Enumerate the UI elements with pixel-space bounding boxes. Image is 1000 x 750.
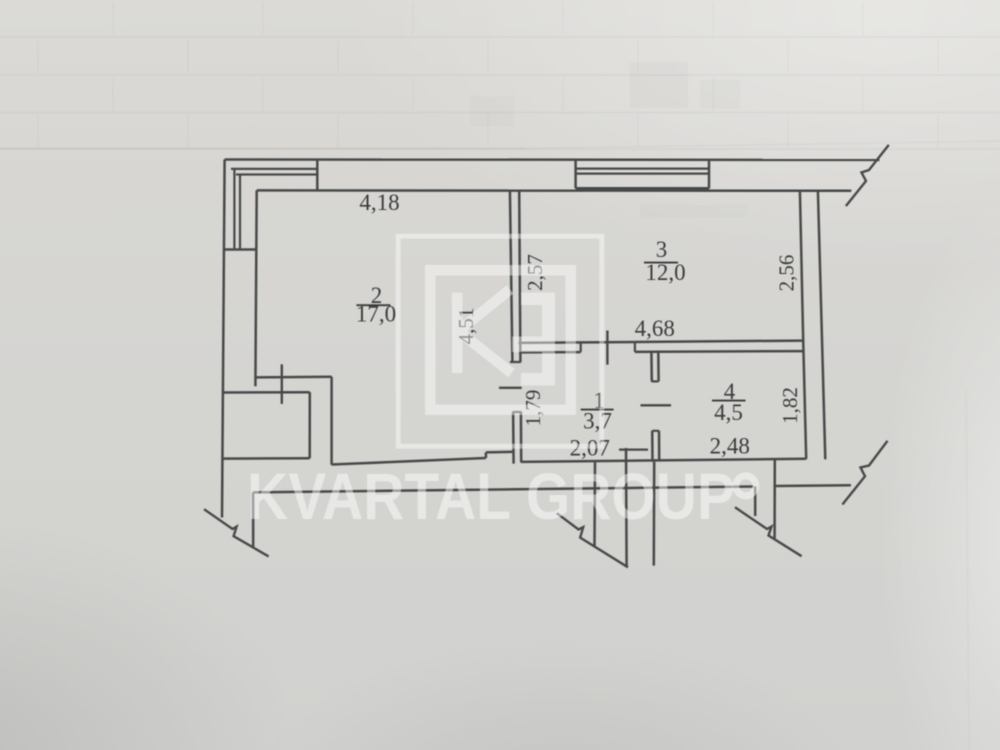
svg-text:4,18: 4,18: [359, 190, 399, 215]
svg-text:1,82: 1,82: [778, 387, 802, 424]
svg-text:2,48: 2,48: [710, 434, 750, 459]
svg-text:17,0: 17,0: [356, 302, 396, 327]
svg-text:12,0: 12,0: [645, 260, 685, 285]
svg-text:3,7: 3,7: [583, 409, 612, 434]
svg-text:KVARTAL GROUP: KVARTAL GROUP: [247, 459, 735, 533]
svg-text:4,5: 4,5: [714, 400, 743, 425]
svg-text:2,56: 2,56: [775, 255, 799, 292]
svg-text:4,68: 4,68: [635, 316, 675, 341]
svg-text:3: 3: [656, 237, 668, 262]
